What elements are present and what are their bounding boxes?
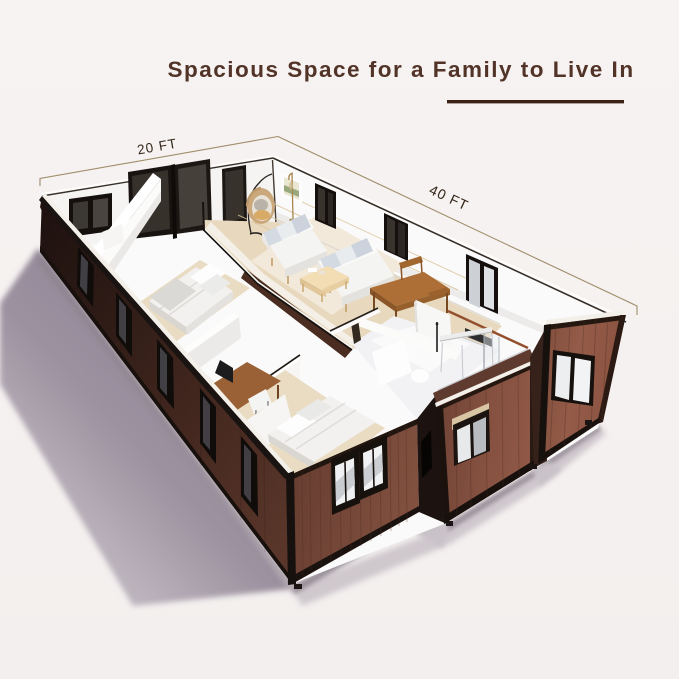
svg-text:Spacious Space for a Family to: Spacious Space for a Family to Live In — [167, 57, 634, 82]
